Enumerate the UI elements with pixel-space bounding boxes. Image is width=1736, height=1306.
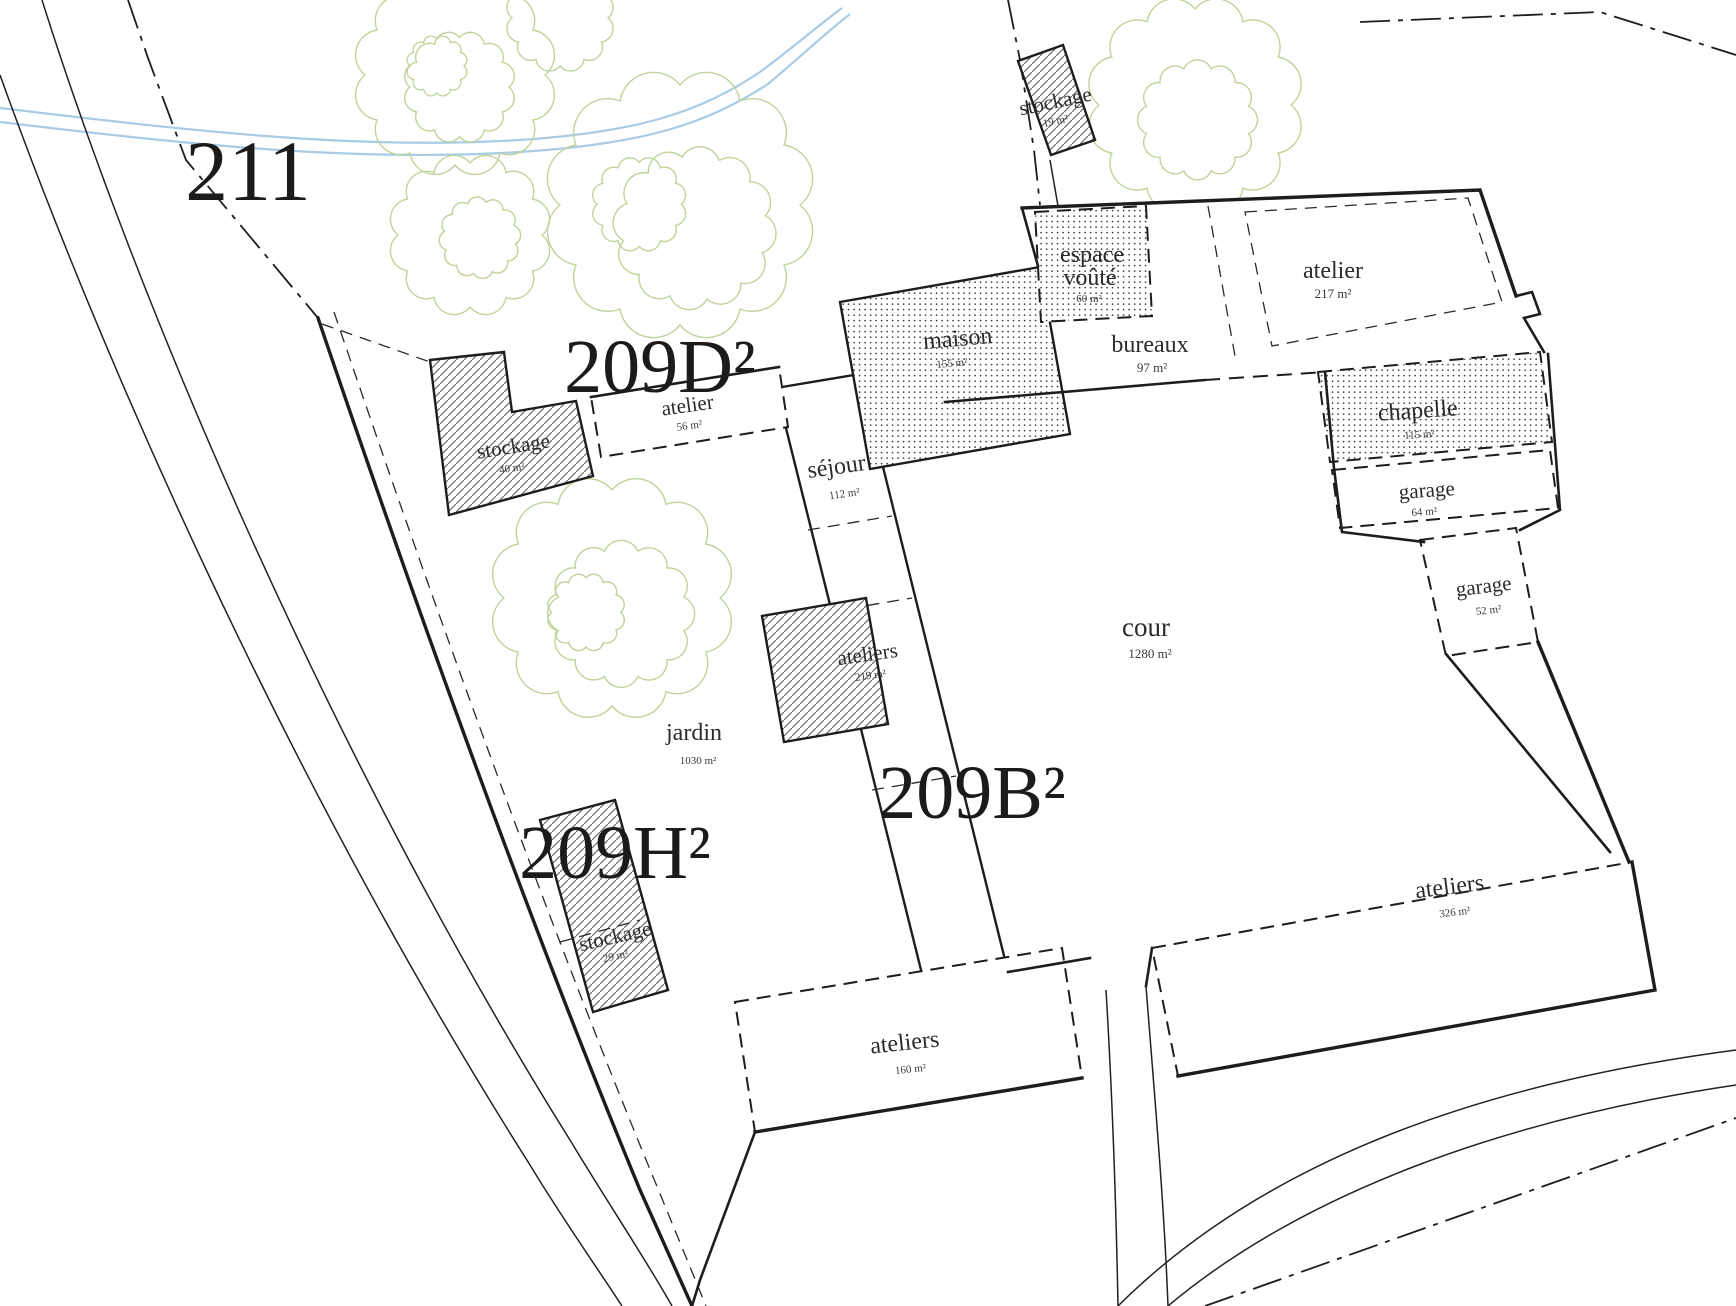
room-name: chapelle: [1377, 395, 1459, 427]
room-name: bureaux: [1111, 332, 1188, 358]
room-area: 1030 m²: [680, 755, 717, 767]
room-label-jardin: jardin 1030 m²: [665, 720, 722, 767]
room-area: 217 m²: [1315, 286, 1352, 301]
road-edge: [0, 75, 622, 1306]
tree-icon: [507, 0, 613, 71]
parcel-limit: [1360, 12, 1736, 55]
tree-icon: [390, 155, 549, 314]
room-area: 1280 m²: [1128, 646, 1171, 661]
wall-link: [1050, 160, 1058, 206]
room-area: 60 m²: [1076, 293, 1102, 305]
room-name: jardin: [665, 720, 722, 746]
stream: [0, 8, 850, 155]
tree-icon: [356, 0, 555, 174]
road-edge: [42, 0, 672, 1306]
room-name: cour: [1122, 612, 1170, 642]
tree-icon: [1089, 0, 1301, 211]
site-plan-page: 211 209D² 209H² 209B² stockage 19 m² esp…: [0, 0, 1736, 1306]
road-edge: [1168, 1085, 1736, 1306]
parcel-label-211: 211: [185, 123, 311, 219]
parcel-label-209B2: 209B²: [878, 751, 1065, 835]
boundary-link: [322, 324, 430, 362]
road-edge: [1118, 1050, 1736, 1306]
room-area: 115 m²: [1404, 428, 1436, 442]
room-label-cour: cour 1280 m²: [1122, 612, 1172, 661]
property-boundary-south: [692, 1132, 755, 1306]
room-name: garage: [1398, 476, 1456, 504]
room-area: 97 m²: [1137, 360, 1167, 375]
site-plan-drawing: 211 209D² 209H² 209B² stockage 19 m² esp…: [0, 0, 1736, 1306]
room-name: voûté: [1063, 265, 1116, 291]
tree-icon: [493, 479, 732, 718]
room-name: atelier: [1303, 258, 1363, 284]
lane-edge: [1106, 990, 1118, 1306]
lane-edge: [1146, 986, 1168, 1306]
parcel-label-209H2: 209H²: [519, 811, 711, 895]
room-area: 64 m²: [1411, 505, 1438, 519]
